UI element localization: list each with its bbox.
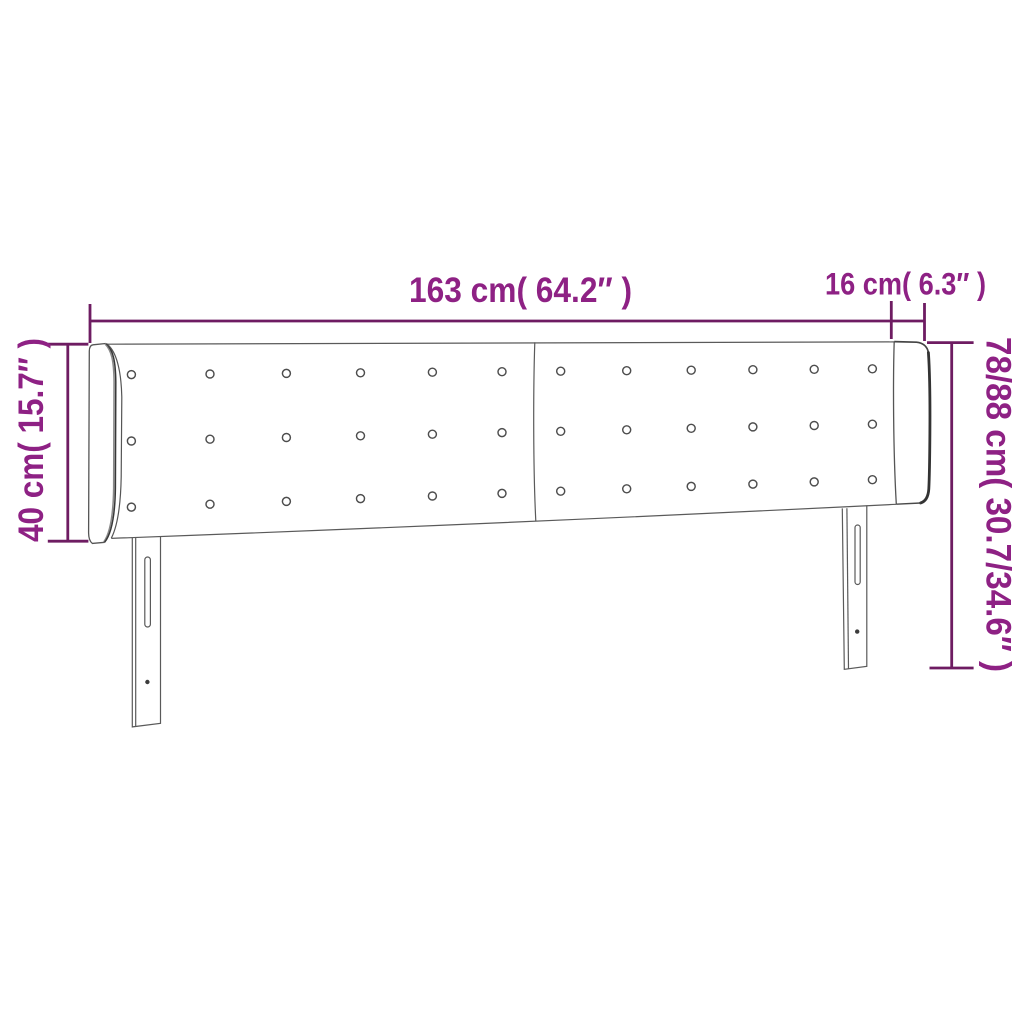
svg-text:78/88 cm( 30.7/34.6″ ): 78/88 cm( 30.7/34.6″ ) — [979, 337, 1018, 672]
svg-text:16 cm( 6.3″ ): 16 cm( 6.3″ ) — [825, 266, 986, 302]
svg-text:163 cm( 64.2″ ): 163 cm( 64.2″ ) — [409, 271, 632, 310]
svg-text:40 cm( 15.7″ ): 40 cm( 15.7″ ) — [12, 338, 51, 542]
